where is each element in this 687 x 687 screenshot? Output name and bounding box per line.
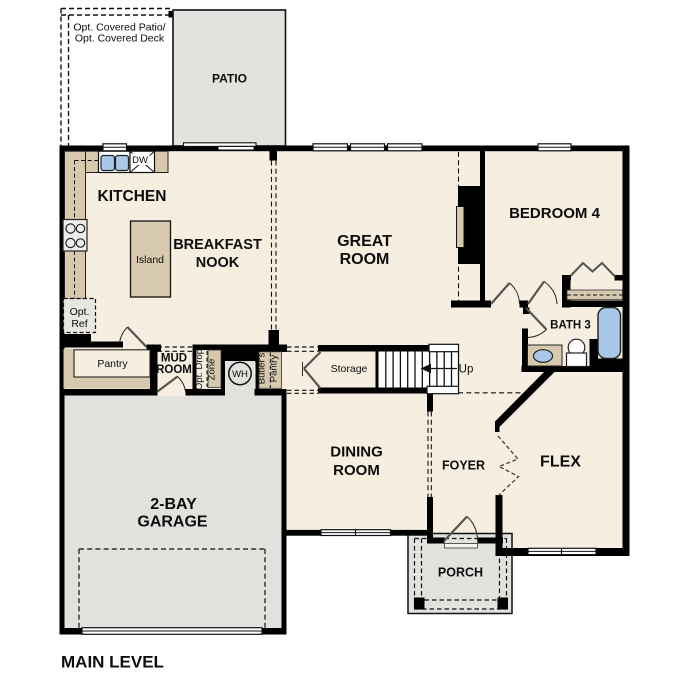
svg-text:Opt.: Opt. xyxy=(70,306,90,318)
svg-text:ROOM: ROOM xyxy=(156,364,192,376)
svg-text:Storage: Storage xyxy=(331,363,368,375)
svg-text:MAIN LEVEL: MAIN LEVEL xyxy=(61,653,164,672)
svg-text:Butler's: Butler's xyxy=(257,353,268,385)
svg-text:Up: Up xyxy=(459,364,474,376)
svg-text:BATH 3: BATH 3 xyxy=(550,320,591,332)
svg-text:Ref: Ref xyxy=(71,318,87,330)
svg-text:PATIO: PATIO xyxy=(212,72,247,86)
svg-text:Pantry: Pantry xyxy=(97,358,128,370)
svg-text:GREAT: GREAT xyxy=(337,233,392,250)
svg-text:Zone: Zone xyxy=(207,359,218,381)
svg-text:FOYER: FOYER xyxy=(442,459,485,473)
svg-text:ROOM: ROOM xyxy=(333,462,380,479)
svg-text:Opt. Drop: Opt. Drop xyxy=(194,349,205,390)
svg-text:WH: WH xyxy=(232,369,248,380)
svg-text:2-BAY: 2-BAY xyxy=(150,496,197,513)
svg-text:ROOM: ROOM xyxy=(340,251,390,268)
svg-text:GARAGE: GARAGE xyxy=(137,514,208,531)
svg-text:NOOK: NOOK xyxy=(196,255,240,271)
svg-text:DINING: DINING xyxy=(330,444,383,461)
svg-text:FLEX: FLEX xyxy=(540,454,581,471)
svg-text:DW: DW xyxy=(132,155,148,166)
svg-text:Opt. Covered Deck: Opt. Covered Deck xyxy=(75,33,165,45)
svg-text:PORCH: PORCH xyxy=(438,566,483,580)
svg-text:BREAKFAST: BREAKFAST xyxy=(173,237,262,253)
svg-text:MUD: MUD xyxy=(161,353,187,365)
svg-text:Island: Island xyxy=(136,254,164,266)
svg-text:KITCHEN: KITCHEN xyxy=(98,188,167,205)
svg-text:BEDROOM 4: BEDROOM 4 xyxy=(509,205,601,222)
svg-text:Pantry: Pantry xyxy=(269,355,280,383)
